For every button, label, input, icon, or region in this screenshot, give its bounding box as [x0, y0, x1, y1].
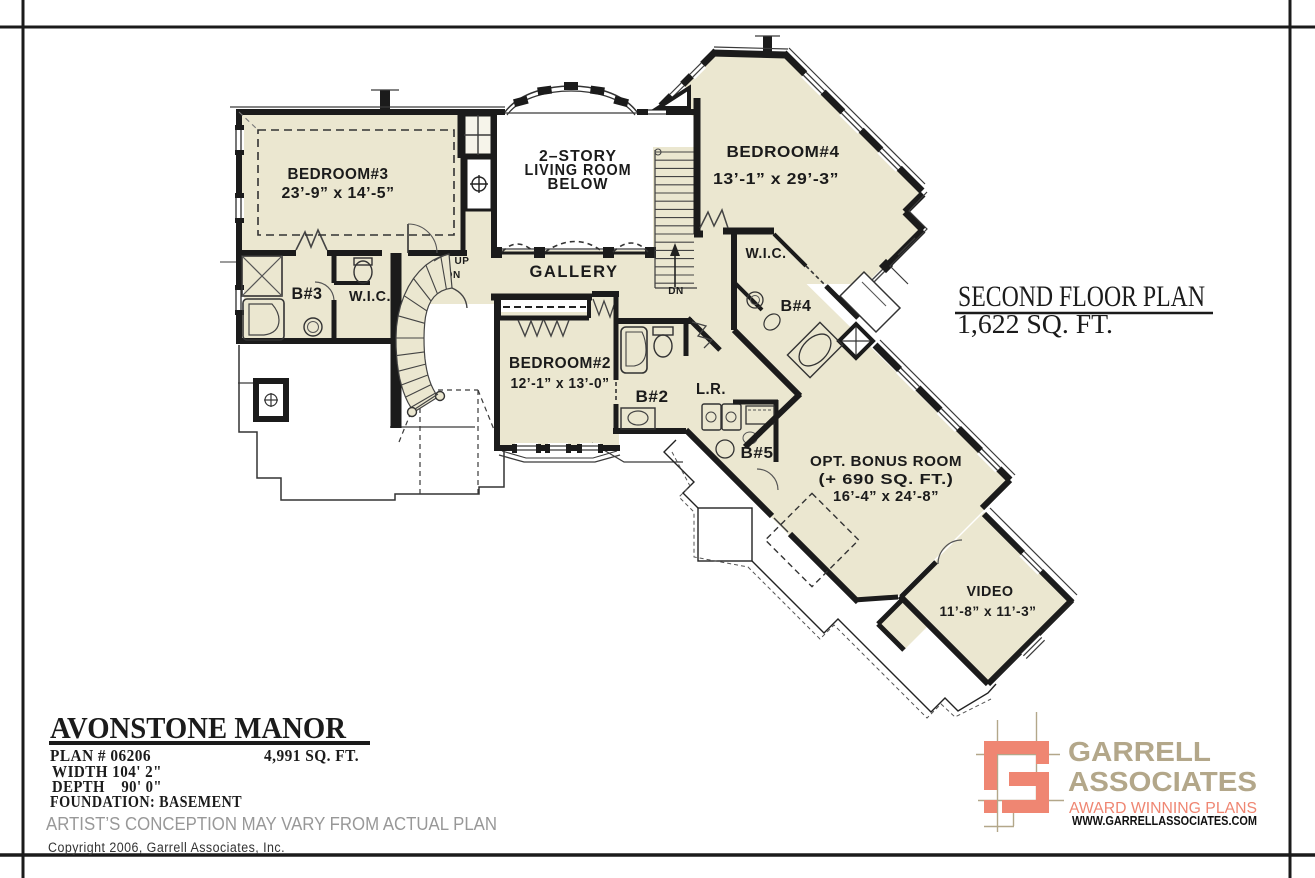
svg-text:VIDEO: VIDEO — [967, 583, 1014, 600]
svg-text:W.I.C.: W.I.C. — [746, 246, 787, 262]
svg-text:GALLERY: GALLERY — [530, 263, 619, 281]
svg-text:ARTIST’S CONCEPTION MAY VARY F: ARTIST’S CONCEPTION MAY VARY FROM ACTUAL… — [46, 814, 497, 834]
svg-text:BEDROOM#3: BEDROOM#3 — [288, 166, 389, 183]
svg-text:1,622 SQ. FT.: 1,622 SQ. FT. — [957, 309, 1113, 339]
svg-text:Copyright 2006, Garrell Associ: Copyright 2006, Garrell Associates, Inc. — [48, 840, 285, 855]
svg-text:4,991 SQ. FT.: 4,991 SQ. FT. — [264, 746, 359, 765]
svg-text:WWW.GARRELLASSOCIATES.COM: WWW.GARRELLASSOCIATES.COM — [1072, 813, 1257, 828]
svg-text:13’-1” x 29’-3”: 13’-1” x 29’-3” — [713, 171, 839, 188]
svg-text:B#4: B#4 — [781, 298, 812, 315]
svg-text:BEDROOM#2: BEDROOM#2 — [509, 355, 611, 372]
svg-text:BELOW: BELOW — [548, 176, 609, 193]
svg-text:OPT. BONUS ROOM: OPT. BONUS ROOM — [810, 453, 962, 470]
svg-text:B#5: B#5 — [741, 445, 774, 462]
svg-text:UP: UP — [455, 256, 470, 267]
svg-text:12’-1” x 13’-0”: 12’-1” x 13’-0” — [511, 375, 610, 392]
svg-text:FOUNDATION: BASEMENT: FOUNDATION: BASEMENT — [50, 792, 242, 811]
svg-text:B#3: B#3 — [292, 284, 323, 303]
svg-text:(+ 690 SQ. FT.): (+ 690 SQ. FT.) — [819, 471, 954, 488]
svg-text:AVONSTONE MANOR: AVONSTONE MANOR — [50, 710, 347, 745]
svg-text:L.R.: L.R. — [696, 381, 726, 398]
svg-text:DN: DN — [668, 286, 683, 297]
svg-text:B#2: B#2 — [636, 387, 669, 406]
svg-text:GARRELL: GARRELL — [1068, 736, 1211, 767]
svg-text:11’-8” x 11’-3”: 11’-8” x 11’-3” — [940, 604, 1037, 619]
svg-text:23’-9” x 14’-5”: 23’-9” x 14’-5” — [282, 185, 395, 202]
svg-text:ASSOCIATES: ASSOCIATES — [1068, 766, 1257, 797]
svg-text:16’-4” x 24’-8”: 16’-4” x 24’-8” — [833, 488, 939, 505]
svg-text:W.I.C.: W.I.C. — [349, 288, 391, 305]
svg-text:BEDROOM#4: BEDROOM#4 — [727, 144, 840, 161]
